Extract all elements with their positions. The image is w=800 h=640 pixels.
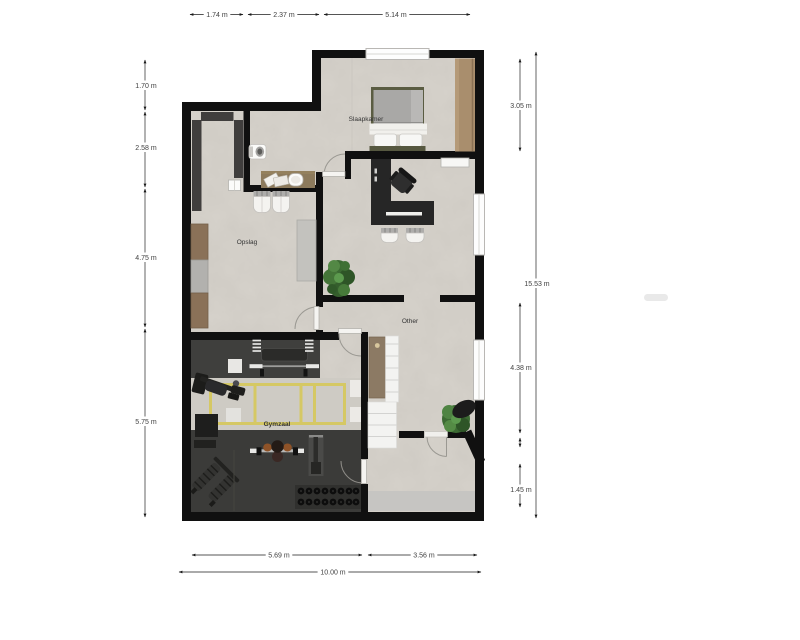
svg-text:Opslag: Opslag (237, 239, 258, 246)
svg-text:2.58 m: 2.58 m (135, 145, 157, 152)
svg-text:15.53 m: 15.53 m (524, 281, 549, 288)
svg-text:5.14 m: 5.14 m (385, 12, 407, 19)
svg-text:5.75 m: 5.75 m (135, 419, 157, 426)
svg-text:1.74 m: 1.74 m (206, 12, 228, 19)
svg-text:5.69 m: 5.69 m (268, 553, 290, 560)
svg-text:3.05 m: 3.05 m (510, 103, 532, 110)
svg-text:Gymzaal: Gymzaal (264, 421, 291, 428)
svg-text:1.70 m: 1.70 m (135, 83, 157, 90)
svg-text:Other: Other (402, 318, 419, 325)
svg-text:4.75 m: 4.75 m (135, 255, 157, 262)
svg-text:1.45 m: 1.45 m (510, 487, 532, 494)
svg-text:2.37 m: 2.37 m (273, 12, 295, 19)
svg-text:Slaapkamer: Slaapkamer (349, 116, 385, 123)
svg-text:4.38 m: 4.38 m (510, 365, 532, 372)
svg-text:10.00 m: 10.00 m (320, 570, 345, 577)
svg-text:3.56 m: 3.56 m (413, 553, 435, 560)
